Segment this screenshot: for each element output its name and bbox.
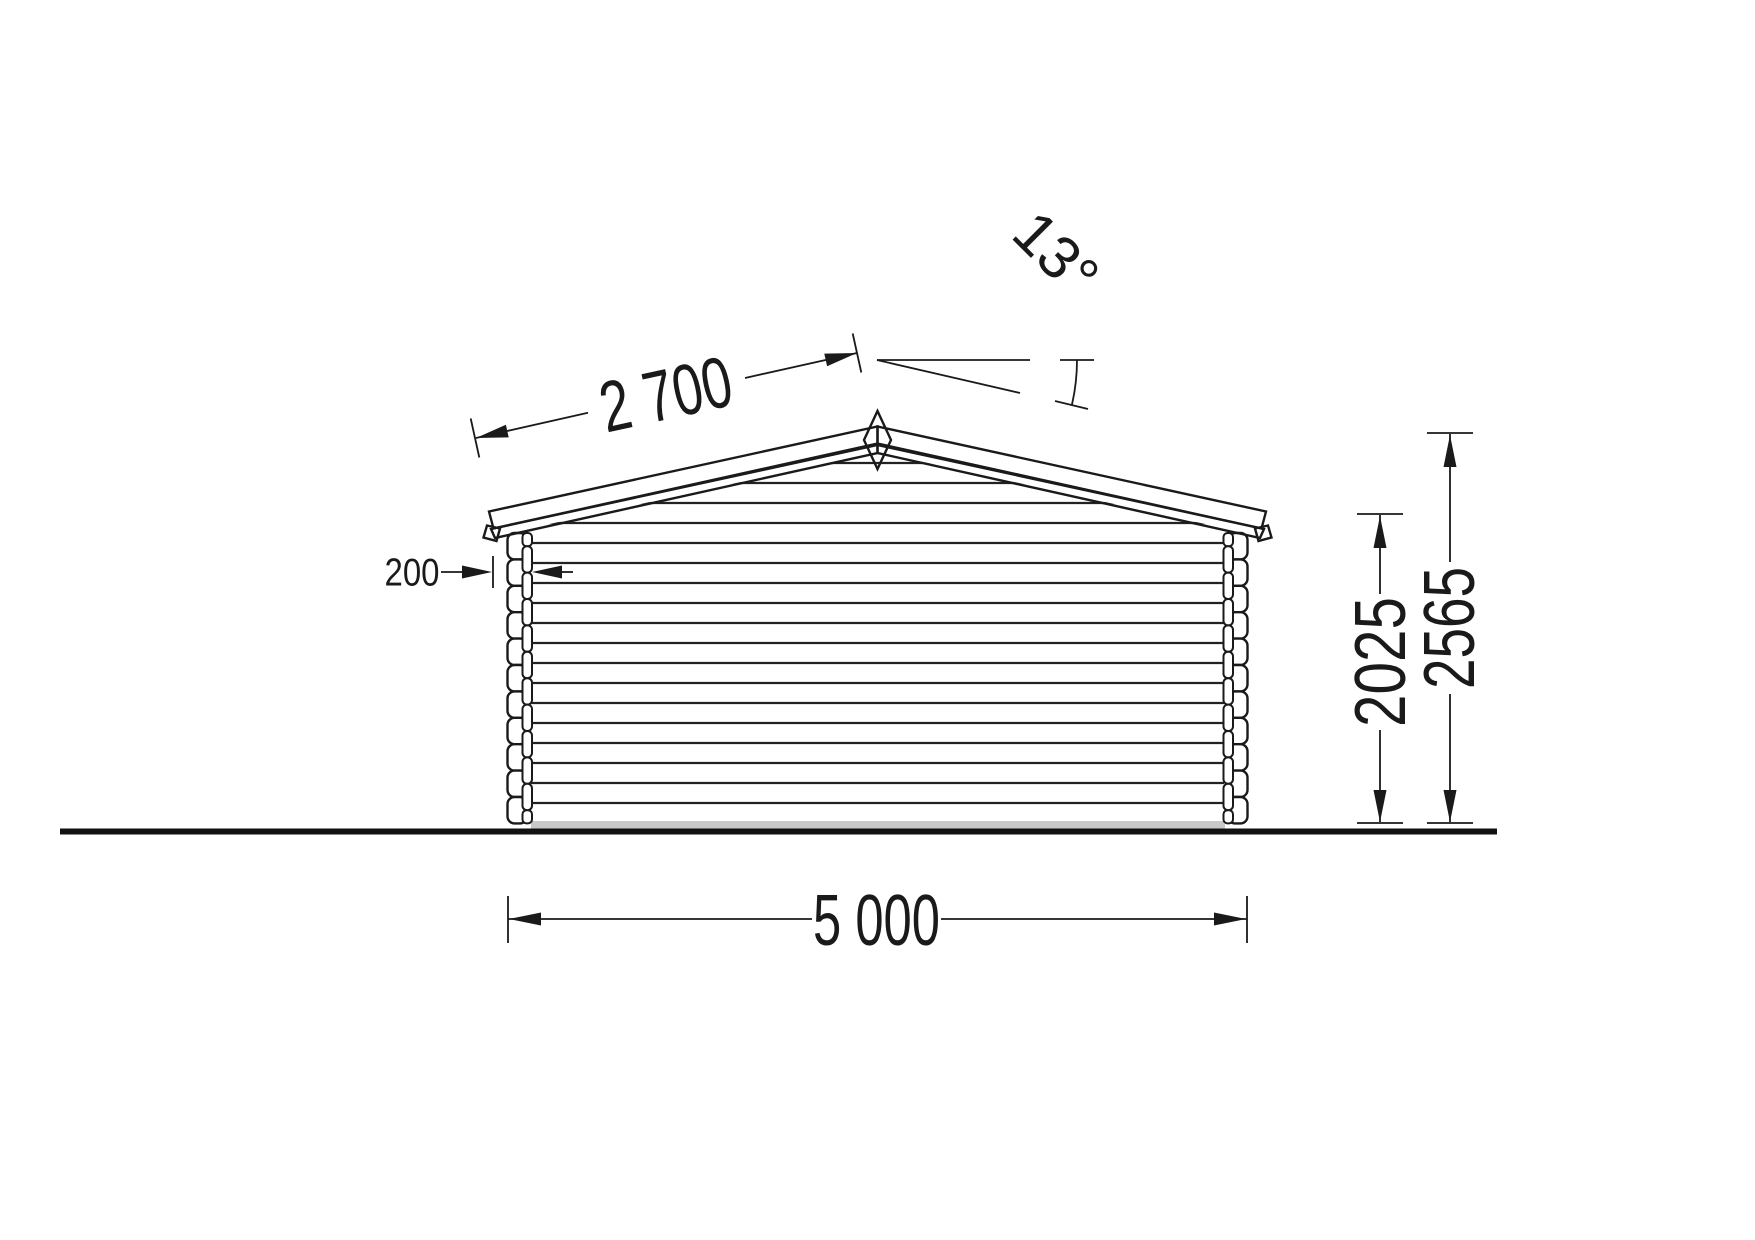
dimension-log-thickness: 200: [385, 552, 574, 595]
roof-right-board: [878, 427, 1267, 529]
elevation-drawing: 5 000 2025 2565 2 700 13°: [0, 0, 1755, 1240]
dimension-log-thickness-label: 200: [385, 552, 440, 595]
dimension-roof-slope-length: 2 700: [471, 334, 862, 458]
log-end-notch: [523, 784, 533, 810]
log-end-notch: [523, 533, 533, 546]
log-end-notch: [523, 652, 533, 678]
log-end-notch: [1224, 784, 1234, 810]
elevation-drawing-canvas: 5 000 2025 2565 2 700 13°: [0, 0, 1755, 1240]
wall-log-joints: [531, 463, 1224, 803]
log-end-notch: [1224, 546, 1234, 572]
log-end-notch: [523, 731, 533, 757]
log-end-notch: [1224, 652, 1234, 678]
log-end-notch: [523, 625, 533, 651]
log-end-notch: [1224, 705, 1234, 731]
log-end-notch: [1224, 678, 1234, 704]
log-end-notch: [1224, 533, 1234, 546]
dimension-building-width-label: 5 000: [813, 881, 940, 961]
dimension-ridge-height: 2565: [1410, 433, 1490, 823]
corner-post-right: [1224, 533, 1248, 823]
log-end-notch: [1224, 625, 1234, 651]
dimension-ridge-height-label: 2565: [1410, 567, 1490, 689]
log-end-notch: [1224, 757, 1234, 783]
log-end-notch: [523, 573, 533, 599]
log-end-notch: [1224, 810, 1234, 823]
dimension-wall-height-label: 2025: [1341, 597, 1421, 727]
log-end-notch: [523, 705, 533, 731]
log-end-notch: [1224, 599, 1234, 625]
roof-left-board: [489, 427, 878, 529]
log-end-notch: [1224, 573, 1234, 599]
log-end-notch: [523, 810, 533, 823]
log-end-notch: [523, 546, 533, 572]
log-end-notch: [523, 678, 533, 704]
dimension-roof-slope-length-label: 2 700: [592, 342, 739, 449]
log-end-notch: [1224, 731, 1234, 757]
dimension-roof-angle-label: 13°: [1000, 198, 1112, 310]
log-end-notch: [523, 599, 533, 625]
corner-post-left: [508, 533, 533, 823]
log-end-notch: [523, 757, 533, 783]
dimension-wall-height: 2025: [1341, 514, 1421, 823]
dimension-building-width: 5 000: [508, 881, 1247, 961]
dimension-roof-angle: 13°: [877, 198, 1112, 409]
